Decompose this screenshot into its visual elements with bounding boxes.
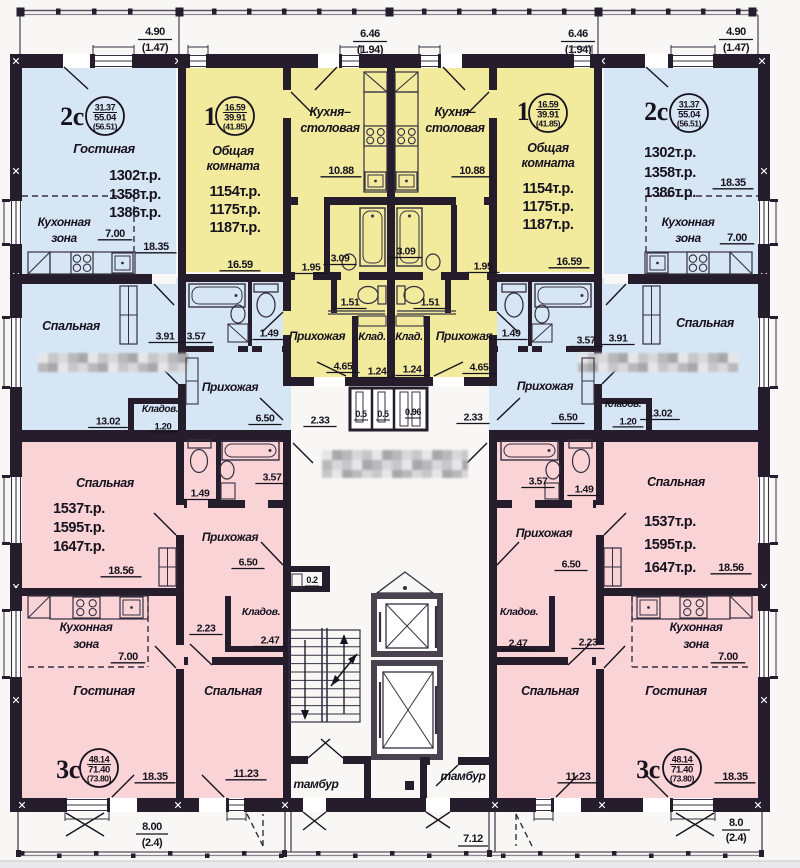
svg-text:Клад.: Клад. — [395, 331, 423, 343]
svg-text:Спальная: Спальная — [676, 316, 735, 330]
svg-text:Кладов.: Кладов. — [605, 399, 641, 410]
svg-text:1.24: 1.24 — [403, 364, 422, 376]
svg-text:Кладов.: Кладов. — [500, 606, 539, 618]
svg-text:18.35: 18.35 — [722, 771, 748, 783]
svg-text:(41.85): (41.85) — [536, 119, 561, 129]
svg-text:Прихожая: Прихожая — [516, 526, 573, 540]
svg-text:1302т.р.: 1302т.р. — [109, 168, 161, 184]
svg-text:1.49: 1.49 — [575, 484, 594, 496]
svg-text:Гостиная: Гостиная — [645, 683, 707, 698]
svg-text:13.02: 13.02 — [648, 408, 673, 420]
svg-text:1.20: 1.20 — [620, 416, 637, 427]
svg-text:1.51: 1.51 — [341, 297, 360, 309]
svg-text:1.95: 1.95 — [474, 261, 493, 273]
svg-text:1.20: 1.20 — [155, 421, 172, 432]
svg-text:1647т.р.: 1647т.р. — [53, 539, 105, 555]
svg-text:комната: комната — [522, 156, 575, 170]
svg-text:Спальная: Спальная — [42, 319, 101, 333]
svg-text:(2.4): (2.4) — [726, 832, 747, 844]
svg-text:1647т.р.: 1647т.р. — [644, 560, 696, 576]
svg-text:1302т.р.: 1302т.р. — [644, 145, 696, 161]
svg-text:1537т.р.: 1537т.р. — [644, 514, 696, 530]
svg-text:Кухонная: Кухонная — [38, 215, 91, 229]
svg-text:1386т.р.: 1386т.р. — [109, 205, 161, 221]
svg-text:(1.47): (1.47) — [142, 42, 169, 54]
svg-text:2.23: 2.23 — [579, 637, 598, 649]
svg-text:Кухонная: Кухонная — [60, 620, 113, 634]
svg-text:6.50: 6.50 — [256, 413, 275, 425]
svg-text:зона: зона — [73, 637, 99, 651]
svg-text:16.59: 16.59 — [556, 256, 582, 268]
svg-text:18.35: 18.35 — [143, 241, 169, 253]
svg-text:Прихожая: Прихожая — [202, 380, 259, 394]
svg-text:Кухня–: Кухня– — [309, 105, 350, 119]
svg-text:8.0: 8.0 — [729, 817, 743, 829]
svg-text:1187т.р.: 1187т.р. — [210, 220, 261, 236]
svg-text:1.24: 1.24 — [368, 366, 387, 378]
svg-text:6.46: 6.46 — [360, 28, 380, 40]
svg-text:4.65: 4.65 — [334, 361, 353, 373]
svg-text:1187т.р.: 1187т.р. — [523, 217, 574, 233]
svg-text:7.00: 7.00 — [718, 651, 738, 663]
svg-text:1386т.р.: 1386т.р. — [644, 185, 696, 201]
svg-text:10.88: 10.88 — [459, 165, 485, 177]
svg-text:столовая: столовая — [425, 121, 485, 135]
svg-text:0.96: 0.96 — [405, 407, 421, 417]
svg-text:3.09: 3.09 — [331, 253, 350, 265]
svg-text:Спальная: Спальная — [647, 475, 706, 489]
svg-text:Гостиная: Гостиная — [73, 683, 135, 698]
svg-text:18.35: 18.35 — [142, 771, 168, 783]
svg-text:1: 1 — [517, 97, 530, 126]
svg-text:2.47: 2.47 — [509, 638, 528, 650]
svg-text:3.91: 3.91 — [609, 333, 628, 345]
svg-text:7.00: 7.00 — [118, 651, 138, 663]
svg-text:3.91: 3.91 — [156, 331, 175, 343]
svg-text:Прихожая: Прихожая — [289, 329, 346, 343]
svg-text:1.95: 1.95 — [302, 262, 321, 274]
svg-text:1.49: 1.49 — [260, 328, 279, 340]
svg-text:зона: зона — [51, 231, 77, 245]
svg-text:Спальная: Спальная — [76, 476, 135, 490]
svg-text:1537т.р.: 1537т.р. — [53, 501, 105, 517]
svg-text:6.50: 6.50 — [239, 557, 258, 569]
svg-text:тамбур: тамбур — [294, 777, 339, 791]
svg-text:Кладов.: Кладов. — [242, 606, 281, 618]
svg-text:48.14: 48.14 — [89, 755, 110, 765]
svg-text:7.00: 7.00 — [105, 228, 125, 240]
svg-text:18.56: 18.56 — [108, 565, 134, 577]
svg-text:16.59: 16.59 — [227, 259, 253, 271]
svg-text:0.2: 0.2 — [306, 575, 318, 585]
svg-text:1.51: 1.51 — [421, 297, 440, 309]
svg-text:7.00: 7.00 — [727, 232, 747, 244]
svg-text:зона: зона — [683, 637, 709, 651]
svg-text:зона: зона — [675, 231, 701, 245]
svg-text:1.49: 1.49 — [191, 488, 210, 500]
svg-text:(41.85): (41.85) — [223, 122, 248, 132]
svg-text:столовая: столовая — [300, 121, 360, 135]
svg-text:Клад.: Клад. — [358, 331, 386, 343]
svg-text:48.14: 48.14 — [672, 755, 693, 765]
svg-text:1595т.р.: 1595т.р. — [644, 537, 696, 553]
svg-text:Кухня–: Кухня– — [434, 105, 475, 119]
svg-text:8.00: 8.00 — [142, 821, 162, 833]
svg-text:3с: 3с — [636, 755, 660, 784]
svg-text:3.57: 3.57 — [577, 335, 596, 347]
svg-text:3.57: 3.57 — [263, 472, 282, 484]
svg-text:комната: комната — [207, 159, 260, 173]
svg-text:11.23: 11.23 — [234, 768, 259, 780]
svg-text:1358т.р.: 1358т.р. — [644, 165, 696, 181]
svg-text:0.5: 0.5 — [377, 409, 389, 419]
svg-text:4.90: 4.90 — [726, 26, 746, 38]
svg-text:(1.47): (1.47) — [723, 42, 750, 54]
svg-text:31.37: 31.37 — [679, 100, 700, 110]
svg-text:Кухонная: Кухонная — [670, 620, 723, 634]
svg-text:16.59: 16.59 — [225, 103, 246, 113]
svg-text:Прихожая: Прихожая — [202, 530, 259, 544]
svg-text:6.46: 6.46 — [568, 28, 588, 40]
svg-text:1175т.р.: 1175т.р. — [523, 199, 574, 215]
svg-text:Спальная: Спальная — [521, 684, 580, 698]
svg-text:(73.80): (73.80) — [87, 774, 112, 784]
svg-text:2с: 2с — [644, 97, 668, 126]
svg-text:(56.51): (56.51) — [677, 119, 702, 129]
svg-text:11.23: 11.23 — [566, 771, 591, 783]
svg-text:1.49: 1.49 — [502, 328, 521, 340]
svg-text:2.23: 2.23 — [197, 623, 216, 635]
svg-text:1154т.р.: 1154т.р. — [523, 181, 574, 197]
svg-text:1358т.р.: 1358т.р. — [109, 187, 161, 203]
svg-text:3.57: 3.57 — [529, 476, 548, 488]
svg-text:2.33: 2.33 — [311, 415, 330, 427]
svg-text:4.65: 4.65 — [470, 362, 489, 374]
svg-text:18.56: 18.56 — [718, 562, 744, 574]
svg-text:Прихожая: Прихожая — [436, 329, 493, 343]
svg-text:2с: 2с — [60, 102, 84, 131]
svg-text:Кухонная: Кухонная — [662, 215, 715, 229]
svg-text:3.09: 3.09 — [397, 246, 416, 258]
svg-text:10.88: 10.88 — [328, 165, 354, 177]
svg-text:Спальная: Спальная — [204, 684, 263, 698]
svg-text:6.50: 6.50 — [562, 559, 581, 571]
svg-text:1: 1 — [204, 102, 217, 131]
svg-text:Кладов.: Кладов. — [142, 404, 178, 415]
svg-text:16.59: 16.59 — [538, 100, 559, 110]
svg-text:Гостиная: Гостиная — [73, 141, 135, 156]
svg-text:Прихожая: Прихожая — [517, 379, 574, 393]
svg-text:Общая: Общая — [212, 144, 255, 158]
svg-text:1175т.р.: 1175т.р. — [210, 202, 261, 218]
svg-text:3с: 3с — [56, 755, 80, 784]
svg-text:13.02: 13.02 — [96, 416, 121, 428]
svg-text:18.35: 18.35 — [720, 177, 746, 189]
svg-text:1154т.р.: 1154т.р. — [210, 184, 261, 200]
svg-text:(56.51): (56.51) — [93, 122, 118, 132]
svg-text:3.57: 3.57 — [187, 331, 206, 343]
svg-text:6.50: 6.50 — [559, 412, 578, 424]
svg-text:7.12: 7.12 — [463, 833, 483, 845]
svg-text:2.33: 2.33 — [464, 412, 483, 424]
svg-text:4.90: 4.90 — [145, 26, 165, 38]
svg-text:2.47: 2.47 — [261, 635, 280, 647]
svg-text:(73.80): (73.80) — [670, 774, 695, 784]
svg-text:(2.4): (2.4) — [142, 837, 163, 849]
svg-text:31.37: 31.37 — [95, 103, 116, 113]
svg-text:тамбур: тамбур — [441, 769, 486, 783]
svg-text:Общая: Общая — [527, 141, 570, 155]
svg-text:0.5: 0.5 — [355, 409, 367, 419]
svg-text:1595т.р.: 1595т.р. — [53, 520, 105, 536]
